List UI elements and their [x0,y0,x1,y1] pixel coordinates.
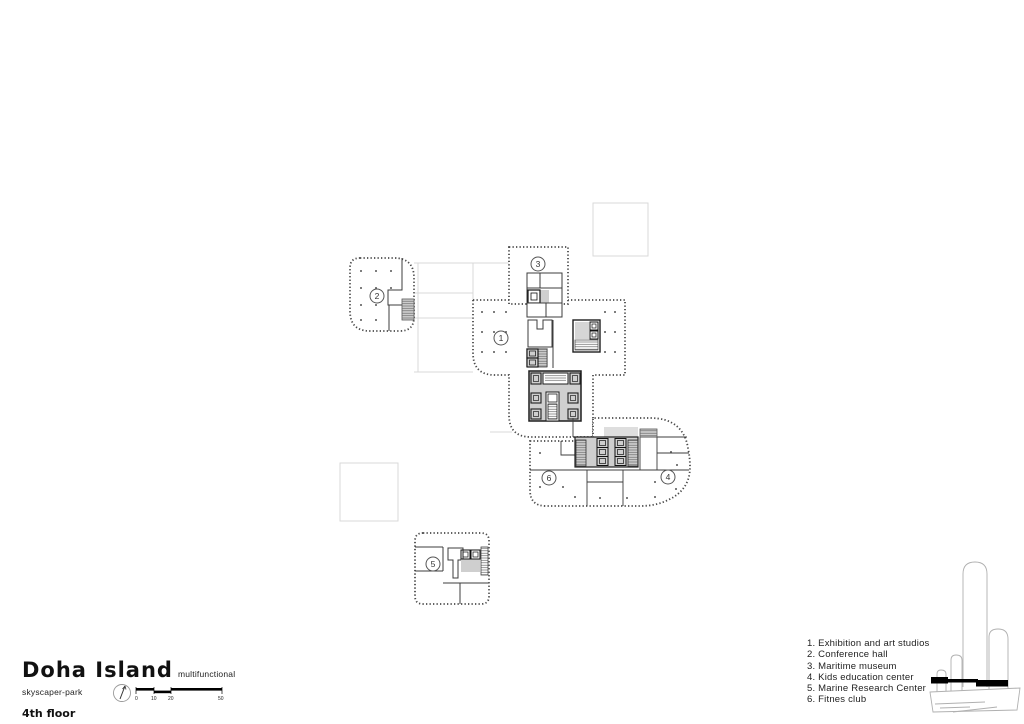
legend-item: 3. Maritime museum [807,661,930,672]
central-elevator-core [529,371,581,421]
compass-and-scale-bar: 0 10 20 50 [112,680,232,708]
title-block: Doha Islandmultifunctional skyscaper-par… [22,660,252,720]
north-arrow-icon [114,685,131,702]
legend-item: 1. Exhibition and art studios [807,638,930,649]
legend-item: 2. Conference hall [807,649,930,660]
zone-label-4: 4 [661,470,675,484]
scale-tick: 0 [135,696,138,702]
main-tower-outline [963,562,987,687]
svg-text:5: 5 [431,559,436,569]
legend-item: 4. Kids education center [807,672,930,683]
floor-plan-sheet: { "title_block": { "project_title": "Doh… [0,0,1024,724]
legend: 1. Exhibition and art studios 2. Confere… [807,638,930,706]
svg-text:4: 4 [666,472,671,482]
svg-text:2: 2 [375,291,380,301]
scale-bar: 0 10 20 50 [135,687,224,702]
zone-label-5: 5 [426,557,440,571]
svg-text:3: 3 [536,259,541,269]
zone-label-3: 3 [531,257,545,271]
base-terrace [930,688,1020,712]
block-5-marine-research [415,533,489,604]
scale-tick: 20 [168,696,174,702]
floor-label: 4th floor [22,707,252,720]
scale-tick: 50 [218,696,224,702]
zone-label-6: 6 [542,471,556,485]
zone-label-2: 2 [370,289,384,303]
zone-label-1: 1 [494,331,508,345]
svg-text:1: 1 [499,333,504,343]
block-1-east-core [573,320,600,352]
legend-item: 5. Marine Research Center [807,683,930,694]
project-title: Doha Island [22,660,173,681]
legend-item: 6. Fitnes club [807,694,930,705]
floor-plan-drawing: 1 2 3 4 5 6 [0,0,1024,724]
scale-tick: 10 [151,696,157,702]
svg-text:6: 6 [547,473,552,483]
tower-key-illustration [925,550,1024,720]
